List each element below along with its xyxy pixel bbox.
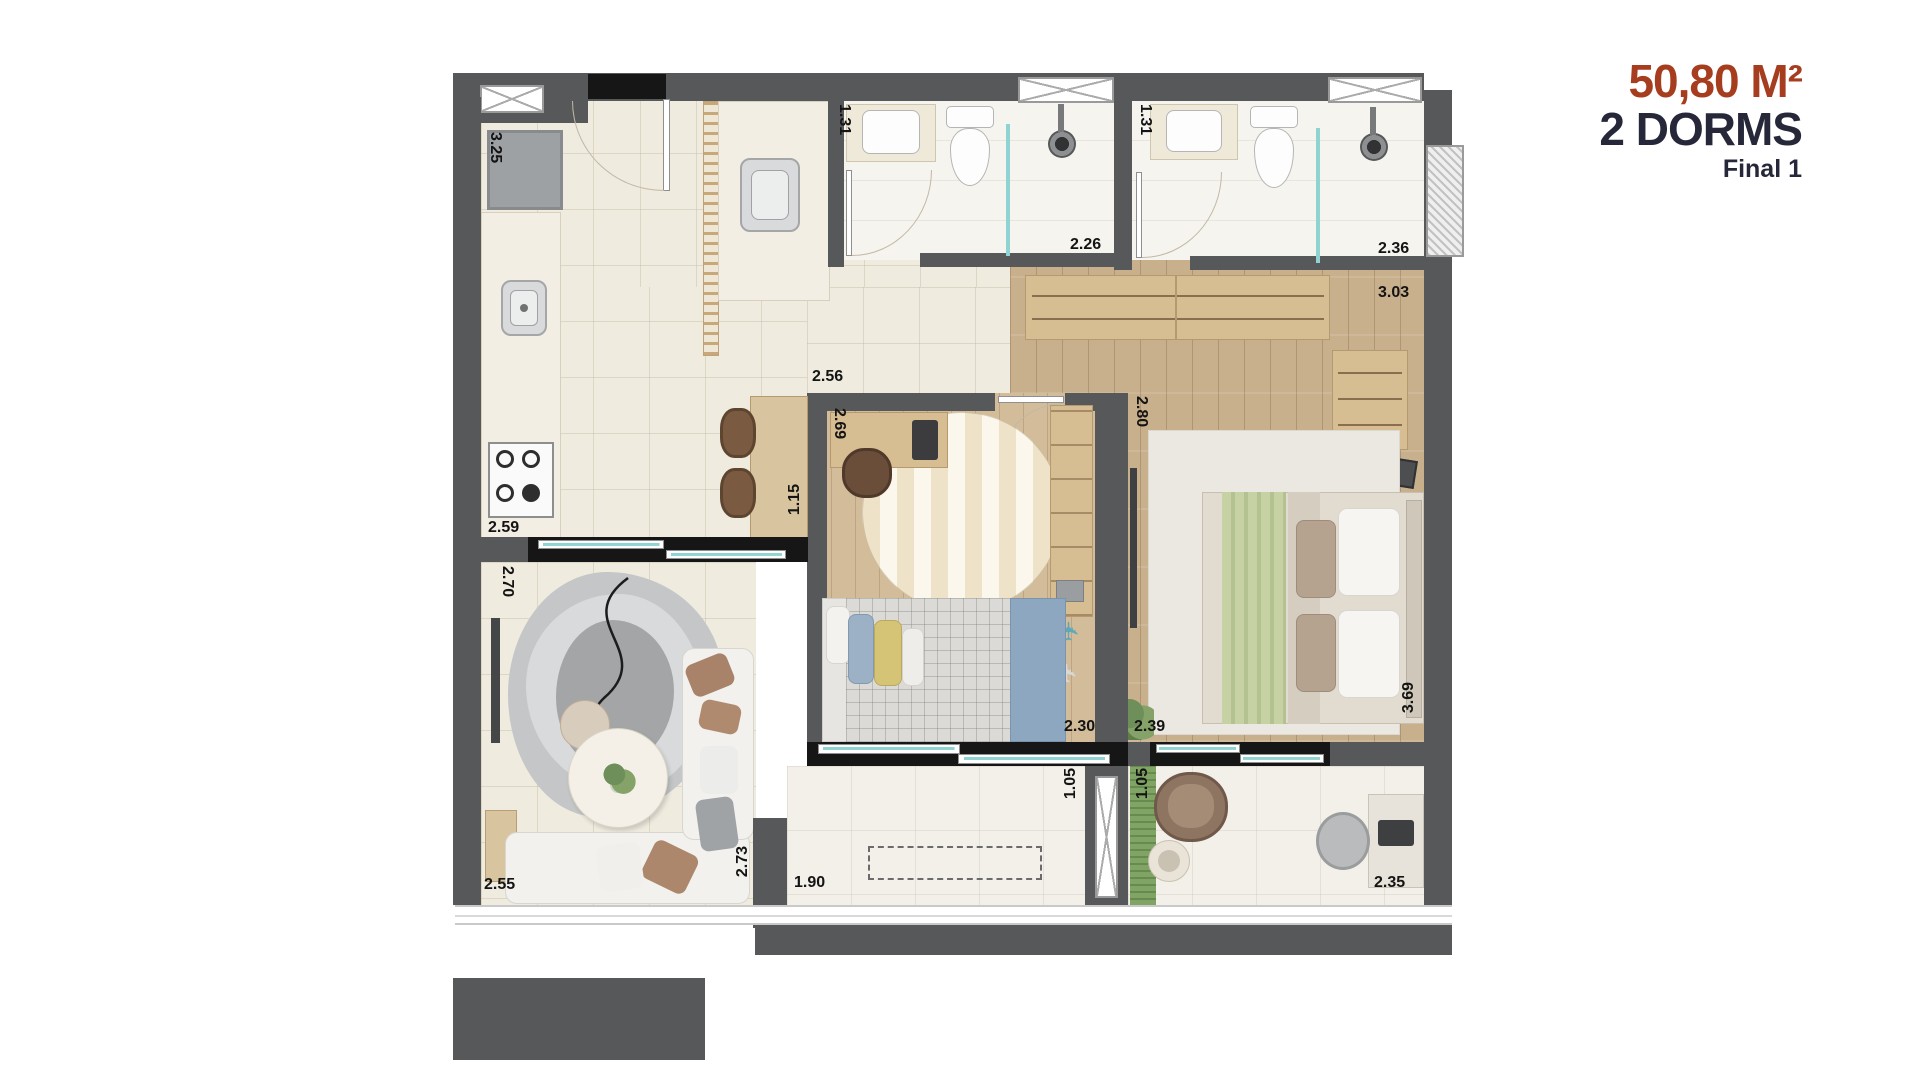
terrace2-desk-chair [1316,812,1370,870]
bath1-shower-glass [1006,124,1010,256]
drying-rack [703,101,719,356]
bath2-window [1328,77,1422,103]
closet-divider [1175,275,1177,340]
dim-terrace2-width: 2.35 [1374,874,1405,892]
master-pillow-white-1 [1338,508,1400,596]
dim-terrace1-side: 1.05 [1062,768,1080,799]
dim-bath1-depth: 2.26 [1070,236,1101,254]
bedroom2-pillow-yellow [874,620,902,686]
bath1-basin [862,110,920,154]
dining-chair-2 [720,468,756,518]
bedroom2-door-leaf [998,396,1064,403]
closet-rod-2 [1032,318,1324,320]
title-block: 50,80 M² 2 DORMS Final 1 [1599,58,1802,182]
bedroom2-desk-chair [842,448,892,498]
dim-master-depth: 2.80 [1132,396,1150,427]
dim-bedroom2-depth: 2.69 [830,408,848,439]
bedroom2-bed-runner [1010,598,1066,742]
master-bed-throw [1222,492,1286,724]
bath2-left-wall [1114,101,1132,263]
dim-bath2-width: 1.31 [1136,104,1154,135]
bedroom2-pillow-white-2 [902,628,924,686]
master-window-pane-2 [1240,754,1324,763]
dim-living-depth: 2.70 [498,566,516,597]
bedroom2-laptop [912,420,938,460]
bath2-shower-arm [1370,107,1376,135]
bath1-shower-arm [1058,104,1064,132]
dorms-label: 2 DORMS [1599,106,1802,154]
living-table-plant [600,760,636,796]
bath2-shower-glass [1316,128,1320,263]
dim-master-width: 2.39 [1134,718,1165,736]
dining-table [750,396,808,538]
terrace1-dashed-outline [868,846,1042,880]
bedroom2-window-pane-1 [818,744,960,754]
bath1-toilet-tank [946,106,994,128]
sofa-pillow-gray [695,796,740,853]
area-label: 50,80 M² [1599,58,1802,106]
living-sliding-pane-2 [666,550,786,559]
terrace2-armchair-cushion [1168,784,1214,828]
kitchen-faucet [520,304,528,312]
balcony-railing [455,905,1452,925]
master-window-pane-1 [1156,744,1240,753]
sofa-pillow-white-2 [595,841,645,893]
bath2-bottom-wall-a [1114,256,1132,270]
bath2-toilet-tank [1250,106,1298,128]
dim-closet-width: 3.03 [1378,284,1409,302]
master-pillow-taupe-1 [1296,520,1336,598]
master-pillow-white-2 [1338,610,1400,698]
bath1-shower-head [1048,130,1076,158]
baths-window [1018,77,1114,103]
stove-burner-1 [496,450,514,468]
living-wall-stub-left [481,537,528,562]
floor-plan: ✈ ✈ [450,60,1462,1060]
bath2-basin [1166,110,1222,152]
closet-wardrobe-top [1025,275,1330,340]
master-tv-panel [1130,468,1137,628]
kitchen-window [480,85,544,113]
dim-bath2-depth: 2.36 [1378,240,1409,258]
left-wall [453,97,481,905]
bath2-bottom-wall-b [1190,256,1424,270]
closet-right-rail-2 [1338,398,1402,400]
living-sliding-pane-1 [538,540,664,549]
dim-bedroom2-bottom: 2.30 [1064,718,1095,736]
stove-burner-2 [522,450,540,468]
dim-kitchen-depth: 3.25 [486,132,504,163]
closet-right-rail-3 [1338,424,1402,426]
closet-right-rail-1 [1338,372,1402,374]
dim-bedroom2-width: 2.56 [812,368,843,386]
entry-mat [588,74,666,99]
dim-dining-width: 1.15 [786,484,804,515]
dim-living-width: 2.55 [484,876,515,894]
laundry-sink-basin [751,170,789,220]
master-bottom-wall-b [1330,742,1424,766]
bath2-shower-head [1360,133,1388,161]
t1-t2-window [1095,776,1118,898]
dim-bath1-width: 1.31 [835,104,853,135]
closet-rod-1 [1032,295,1324,297]
terrace-bottom-wall [755,925,1452,955]
final-label: Final 1 [1599,156,1802,182]
living-tv-panel [491,618,500,743]
master-pillow-taupe-2 [1296,614,1336,692]
dim-terrace2-side: 1.05 [1134,768,1152,799]
bedroom2-pillow-white-1 [826,606,850,664]
dim-master-side: 3.69 [1400,682,1418,713]
dim-living-length: 2.73 [734,846,752,877]
terrace2-laptop [1378,820,1414,846]
terrace2-tray [1158,850,1180,872]
sofa-pillow-white-1 [700,746,738,794]
bath1-bottom-wall-b [920,253,1118,267]
master-left-wall [1095,393,1128,742]
entry-door-leaf [663,99,670,191]
bath1-bottom-wall-a [828,253,844,267]
stove-burner-4 [522,484,540,502]
dim-kitchen-width: 2.59 [488,519,519,537]
bedroom2-window-pane-2 [958,754,1110,764]
top-wall-main [588,73,1424,101]
dining-chair-1 [720,408,756,458]
bedroom2-pillow-blue [848,614,874,684]
ac-unit-hatch [1426,145,1464,257]
dim-terrace1-width: 1.90 [794,874,825,892]
facade-band [453,978,705,1060]
stove-burner-3 [496,484,514,502]
